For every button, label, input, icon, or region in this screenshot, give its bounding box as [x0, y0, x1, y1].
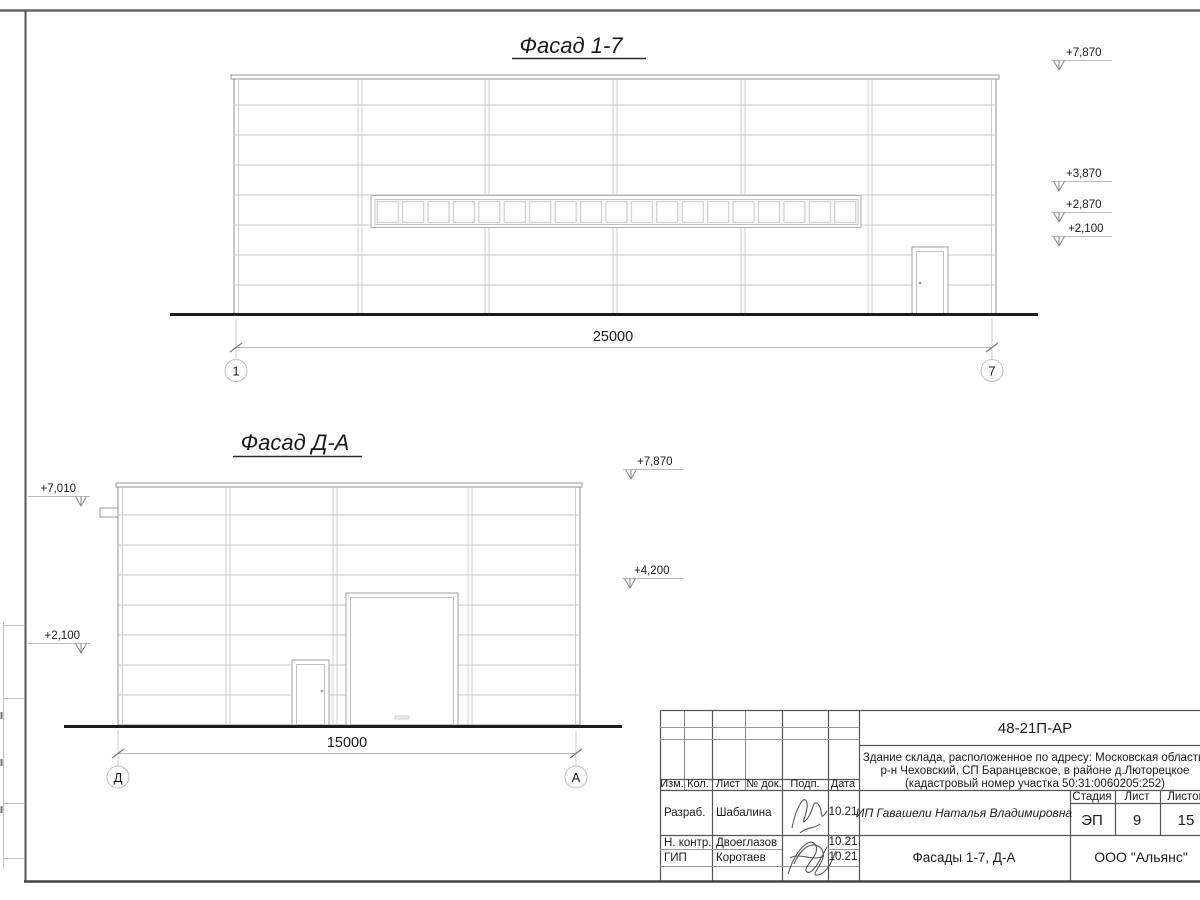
- axis-label: 7: [988, 364, 995, 379]
- facade-d-a-door: [292, 660, 329, 725]
- facade-d-a-dimension: 15000: [112, 730, 582, 766]
- sheets-total: 15: [1178, 812, 1195, 829]
- project-address: Здание склада, расположенное по адресу: …: [863, 752, 1200, 790]
- level-label: +2,100: [45, 630, 81, 642]
- axis-bubble-a: А: [565, 766, 587, 788]
- address-line-1: Здание склада, расположенное по адресу: …: [863, 752, 1200, 764]
- gate-handle: [395, 716, 409, 719]
- col-podp: Подп.: [790, 778, 819, 790]
- level-label: +2,870: [1066, 199, 1102, 211]
- level-mark-3870: +3,870: [1051, 168, 1112, 191]
- dimension-label: 15000: [327, 735, 367, 751]
- facade-d-a-gate: [346, 593, 458, 725]
- facade-1-7-drawing: Фасад 1-7: [170, 33, 1112, 382]
- axis-bubble-1: 1: [225, 360, 247, 382]
- level-mark-2100-left: +2,100: [28, 630, 90, 653]
- facade-1-7-dimension: 25000: [230, 318, 998, 360]
- col-list: Лист: [716, 778, 740, 790]
- sheet-name: Фасады 1-7, Д-А: [912, 850, 1015, 865]
- role-name: Коротаев: [716, 852, 766, 864]
- level-mark-2100: +2,100: [1051, 223, 1112, 246]
- door-handle: [321, 690, 324, 693]
- company-name: ООО "Альянс": [1094, 849, 1188, 865]
- door-handle: [919, 282, 922, 285]
- axis-bubble-7: 7: [981, 360, 1003, 382]
- level-mark-4200: +4,200: [622, 565, 684, 588]
- title-block: Изм. Кол. Лист № док. Подп. Дата 48-21П-…: [660, 710, 1200, 881]
- titleblock-row-gip: ГИП Коротаев 10.21: [664, 851, 857, 864]
- titleblock-row-razrab: Разраб. Шабалина 10.21: [664, 806, 857, 819]
- sheet-number: 9: [1133, 812, 1141, 829]
- stage-values: ЭП 9 15: [1081, 812, 1194, 829]
- level-label: +7,010: [41, 483, 77, 495]
- level-label: +4,200: [634, 565, 670, 577]
- listov-col: Листов: [1167, 791, 1200, 803]
- address-line-2: р-н Чеховский, СП Баранцевское, в районе…: [881, 765, 1190, 777]
- col-ndok: № док.: [746, 778, 781, 790]
- col-kol: Кол.: [687, 778, 709, 790]
- role-label: Н. контр.: [664, 837, 711, 849]
- role-label: ГИП: [664, 852, 687, 864]
- client-name: ИП Гавашели Наталья Владимировна: [856, 806, 1073, 820]
- stage-header: Стадия Лист Листов: [1072, 791, 1200, 803]
- role-label: Разраб.: [664, 807, 705, 819]
- axis-label: 1: [232, 364, 239, 379]
- level-mark-7010: +7,010: [28, 483, 90, 506]
- titleblock-row-nkontr: Н. контр. Двоеглазов 10.21: [664, 836, 857, 849]
- drawing-canvas: Фасад 1-7: [0, 0, 1200, 900]
- role-name: Двоеглазов: [716, 837, 777, 849]
- level-label: +7,870: [1066, 47, 1102, 59]
- role-name: Шабалина: [716, 807, 772, 819]
- level-mark-7870-da: +7,870: [623, 456, 684, 479]
- dimension-label: 25000: [593, 329, 633, 345]
- level-label: +3,870: [1066, 168, 1102, 180]
- drawing-sheet: Фасад 1-7: [0, 0, 1200, 900]
- signature-razrab: [792, 800, 827, 833]
- level-mark-2870: +2,870: [1051, 199, 1112, 222]
- facade-1-7-window-band: [371, 196, 861, 228]
- col-izm: Изм.: [660, 778, 684, 790]
- col-data: Дата: [831, 778, 856, 790]
- stage-col: Стадия: [1072, 791, 1111, 803]
- gutter-outlet: [100, 508, 118, 517]
- axis-label: А: [572, 770, 581, 785]
- level-label: +7,870: [637, 456, 673, 468]
- level-label: +2,100: [1068, 223, 1104, 235]
- list-col: Лист: [1125, 791, 1151, 803]
- facade-1-7-door: [912, 247, 948, 314]
- frame-left-margin-column: [2, 622, 26, 868]
- address-line-3: (кадастровый номер участка 50:31:0060205…: [905, 778, 1165, 790]
- axis-bubble-d: Д: [107, 766, 129, 788]
- role-date: 10.21: [829, 806, 858, 818]
- axis-label: Д: [114, 770, 123, 785]
- facade-1-7-title: Фасад 1-7: [519, 33, 623, 58]
- role-date: 10.21: [829, 836, 858, 848]
- doc-code: 48-21П-АР: [998, 720, 1072, 737]
- stage-value: ЭП: [1081, 812, 1103, 829]
- level-mark-7870: +7,870: [1051, 47, 1112, 70]
- facade-d-a-title: Фасад Д-А: [241, 430, 350, 455]
- facade-d-a-drawing: Фасад Д-А: [28, 430, 684, 788]
